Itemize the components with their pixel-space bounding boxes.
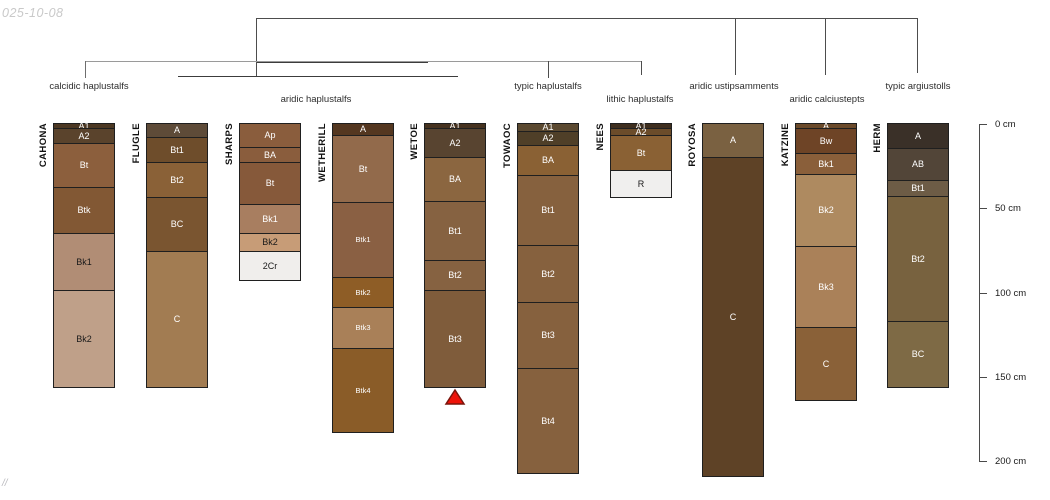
taxon-label-aridic-haplustalfs: aridic haplustalfs [281,94,352,105]
taxon-label-typic-argiustolls: typic argiustolls [886,81,951,92]
horizon-label: 2Cr [263,262,278,271]
horizon-cahona-a2: A2 [53,128,115,144]
horizon-herm-bt2: Bt2 [887,196,949,322]
horizon-wetherill-bt: Bt [332,135,394,203]
depth-tick [979,377,987,378]
horizon-label: Bt [266,179,275,188]
depth-tick [979,208,987,209]
horizon-label: Bk2 [262,238,278,247]
footer-mark: // [2,478,8,489]
horizon-label: C [823,360,830,369]
series-name-wetoe: WETOE [409,123,420,160]
series-name-sharps: SHARPS [224,123,235,165]
horizon-wetoe-a2: A2 [424,128,486,158]
horizon-sharps-bt: Bt [239,162,301,205]
horizon-label: Bt [637,149,646,158]
horizon-label: A2 [449,139,460,148]
soil-profile-figure: 025-10-08 // calcidic haplustalfsaridic … [0,0,1050,500]
horizon-label: A2 [542,134,553,143]
depth-tick-label: 50 cm [995,203,1021,214]
horizon-label: C [174,315,181,324]
depth-tick-label: 0 cm [995,119,1016,130]
horizon-cahona-bk2: Bk2 [53,290,115,388]
horizon-nees-bt: Bt [610,135,672,171]
horizon-flugle-bt2: Bt2 [146,162,208,198]
horizon-label: Bt1 [541,206,555,215]
horizon-katzine-bk3: Bk3 [795,246,857,328]
horizon-wetoe-bt2: Bt2 [424,260,486,291]
horizon-label: Bt2 [448,271,462,280]
horizon-label: AB [912,160,924,169]
taxon-label-calcidic-haplustalfs: calcidic haplustalfs [49,81,128,92]
horizon-label: Bt2 [541,270,555,279]
horizon-label: Bt [359,165,368,174]
horizon-label: BC [912,350,925,359]
horizon-label: A [174,126,180,135]
taxon-label-lithic-haplustalfs: lithic haplustalfs [606,94,673,105]
horizon-wetherill-btk4: Btk4 [332,348,394,433]
horizon-label: Bk1 [262,215,278,224]
horizon-label: C [730,313,737,322]
horizon-wetoe-ba: BA [424,157,486,202]
dendrogram-segment [735,18,736,75]
horizon-label: BA [264,151,276,160]
horizon-sharps-bk2: Bk2 [239,233,301,252]
taxon-label-aridic-ustipsamments: aridic ustipsamments [689,81,778,92]
horizon-label: BA [449,175,461,184]
horizon-label: Bk2 [76,335,92,344]
horizon-label: Bt [80,161,89,170]
horizon-label: Bk2 [818,206,834,215]
dendrogram-segment [257,62,428,63]
horizon-katzine-c: C [795,327,857,401]
horizon-katzine-bk2: Bk2 [795,174,857,247]
horizon-sharps-ap: Ap [239,123,301,148]
horizon-label: Bk1 [818,160,834,169]
depth-tick [979,461,987,462]
horizon-label: A2 [78,132,89,141]
horizon-label: Btk2 [355,289,370,297]
horizon-label: Bt1 [448,227,462,236]
dendrogram-segment [85,61,86,78]
horizon-towaoc-bt3: Bt3 [517,302,579,369]
series-name-wetherill: WETHERILL [317,123,328,182]
horizon-label: Btk1 [355,236,370,244]
horizon-wetherill-btk2: Btk2 [332,277,394,308]
horizon-towaoc-bt2: Bt2 [517,245,579,303]
dendrogram-segment [917,18,918,73]
horizon-label: Bt1 [170,146,184,155]
horizon-towaoc-a2: A2 [517,131,579,146]
horizon-towaoc-ba: BA [517,145,579,176]
horizon-label: Bt3 [541,331,555,340]
horizon-label: Bk1 [76,258,92,267]
horizon-flugle-c: C [146,251,208,388]
series-name-cahona: CAHONA [38,123,49,167]
dendrogram-segment [641,61,642,75]
horizon-label: BA [542,156,554,165]
taxon-label-aridic-calciustepts: aridic calciustepts [790,94,865,105]
horizon-label: Bt2 [911,255,925,264]
horizon-label: Ap [264,131,275,140]
horizon-herm-bc: BC [887,321,949,388]
sample-marker-triangle [445,389,465,405]
depth-tick-label: 100 cm [995,288,1026,299]
horizon-label: A [730,136,736,145]
horizon-flugle-a: A [146,123,208,138]
dendrogram-segment [825,18,826,75]
dendrogram-segment [256,18,257,77]
series-name-royosa: ROYOSA [687,123,698,167]
date-watermark: 025-10-08 [2,6,64,20]
series-name-herm: HERM [872,123,883,153]
horizon-cahona-btk: Btk [53,187,115,234]
horizon-flugle-bc: BC [146,197,208,252]
horizon-nees-r: R [610,170,672,198]
horizon-herm-ab: AB [887,148,949,181]
horizon-royosa-c: C [702,157,764,477]
horizon-label: Bw [820,137,833,146]
horizon-label: Btk [77,206,90,215]
horizon-label: Bt1 [911,184,925,193]
horizon-label: A [915,132,921,141]
horizon-label: Bt2 [170,176,184,185]
horizon-label: Bt4 [541,417,555,426]
horizon-towaoc-bt1: Bt1 [517,175,579,246]
horizon-wetoe-bt1: Bt1 [424,201,486,261]
horizon-label: Btk3 [355,324,370,332]
horizon-katzine-bk1: Bk1 [795,153,857,175]
horizon-wetherill-btk1: Btk1 [332,202,394,278]
horizon-label: BC [171,220,184,229]
horizon-wetherill-btk3: Btk3 [332,307,394,349]
horizon-label: A [360,125,366,134]
dendrogram-segment [548,61,549,78]
horizon-sharps-bk1: Bk1 [239,204,301,234]
horizon-herm-a: A [887,123,949,149]
dendrogram-segment [256,18,918,19]
horizon-katzine-bw: Bw [795,128,857,154]
depth-tick-label: 200 cm [995,456,1026,467]
depth-tick [979,124,987,125]
dendrogram-segment [178,76,458,77]
horizon-royosa-a: A [702,123,764,158]
horizon-cahona-bt: Bt [53,143,115,188]
horizon-towaoc-bt4: Bt4 [517,368,579,474]
horizon-label: R [638,180,645,189]
series-name-katzine: KATZINE [780,123,791,166]
horizon-cahona-bk1: Bk1 [53,233,115,291]
depth-tick [979,293,987,294]
horizon-label: Btk4 [355,387,370,395]
horizon-flugle-bt1: Bt1 [146,137,208,163]
series-name-nees: NEES [595,123,606,150]
taxon-label-typic-haplustalfs: typic haplustalfs [514,81,582,92]
horizon-label: Bk3 [818,283,834,292]
horizon-sharps-ba: BA [239,147,301,163]
depth-tick-label: 150 cm [995,372,1026,383]
horizon-herm-bt1: Bt1 [887,180,949,197]
series-name-flugle: FLUGLE [131,123,142,163]
horizon-label: Bt3 [448,335,462,344]
horizon-sharps-2cr: 2Cr [239,251,301,281]
horizon-wetoe-bt3: Bt3 [424,290,486,388]
series-name-towaoc: TOWAOC [502,123,513,168]
